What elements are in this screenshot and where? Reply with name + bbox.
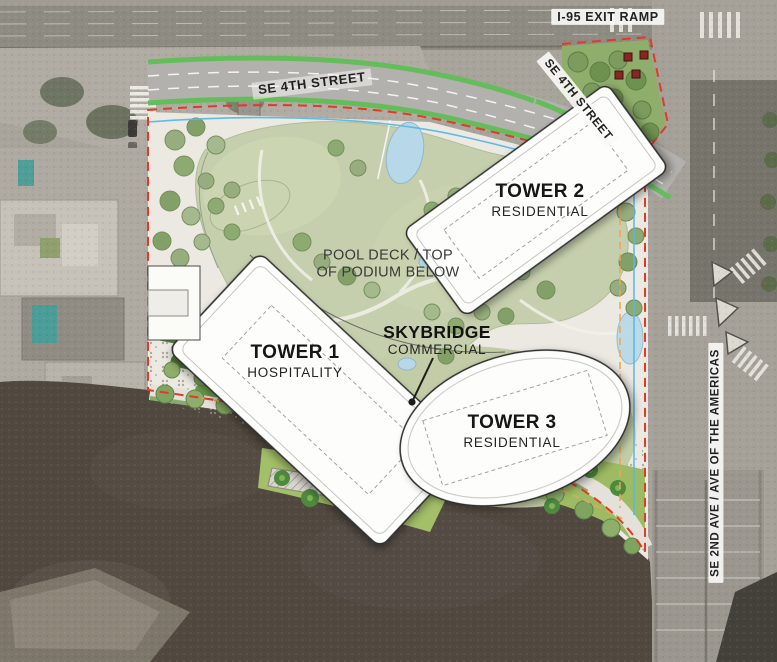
tower-2-label: TOWER 2 RESIDENTIAL (491, 181, 588, 219)
tower-3-label: TOWER 3 RESIDENTIAL (463, 412, 560, 450)
tower-2-name: TOWER 2 (491, 181, 588, 203)
pool-deck-line2: OF PODIUM BELOW (316, 264, 459, 281)
site-plan-page: I-95 EXIT RAMP SE 4TH STREET SE 4TH STRE… (0, 0, 777, 662)
skybridge-label: SKYBRIDGE COMMERCIAL (383, 322, 491, 358)
tower-2-use: RESIDENTIAL (491, 204, 588, 220)
se-2nd-ave-label: SE 2ND AVE / AVE OF THE AMERICAS (708, 343, 723, 583)
pool-deck-label: POOL DECK / TOP OF PODIUM BELOW (316, 247, 459, 280)
skybridge-name: SKYBRIDGE (383, 322, 491, 342)
tower-3-use: RESIDENTIAL (463, 435, 560, 451)
i95-exit-ramp-label: I-95 EXIT RAMP (551, 9, 664, 25)
pool-deck-line1: POOL DECK / TOP (316, 247, 459, 264)
skybridge-use: COMMERCIAL (383, 342, 491, 358)
tower-1-label: TOWER 1 HOSPITALITY (247, 342, 343, 380)
tower-3-name: TOWER 3 (463, 412, 560, 434)
tower-1-use: HOSPITALITY (247, 365, 343, 381)
tower-1-name: TOWER 1 (247, 342, 343, 364)
